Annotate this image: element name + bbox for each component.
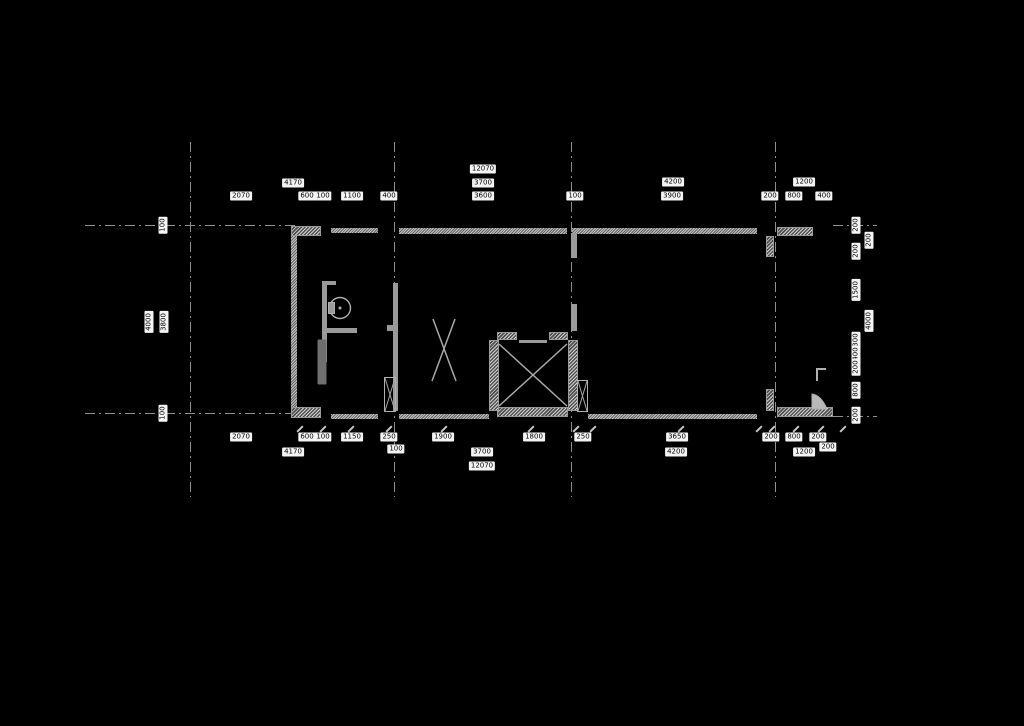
fixture-overlay [0, 0, 1024, 726]
door-swing [812, 394, 827, 409]
stair-cross-line [433, 319, 456, 381]
door-stop [817, 369, 826, 381]
toilet-tank [329, 303, 335, 314]
floor-plan-canvas: 1207041703700420012002070600100110040036… [0, 0, 1024, 726]
toilet-drain [339, 307, 342, 310]
stair-cross-line [432, 319, 455, 381]
